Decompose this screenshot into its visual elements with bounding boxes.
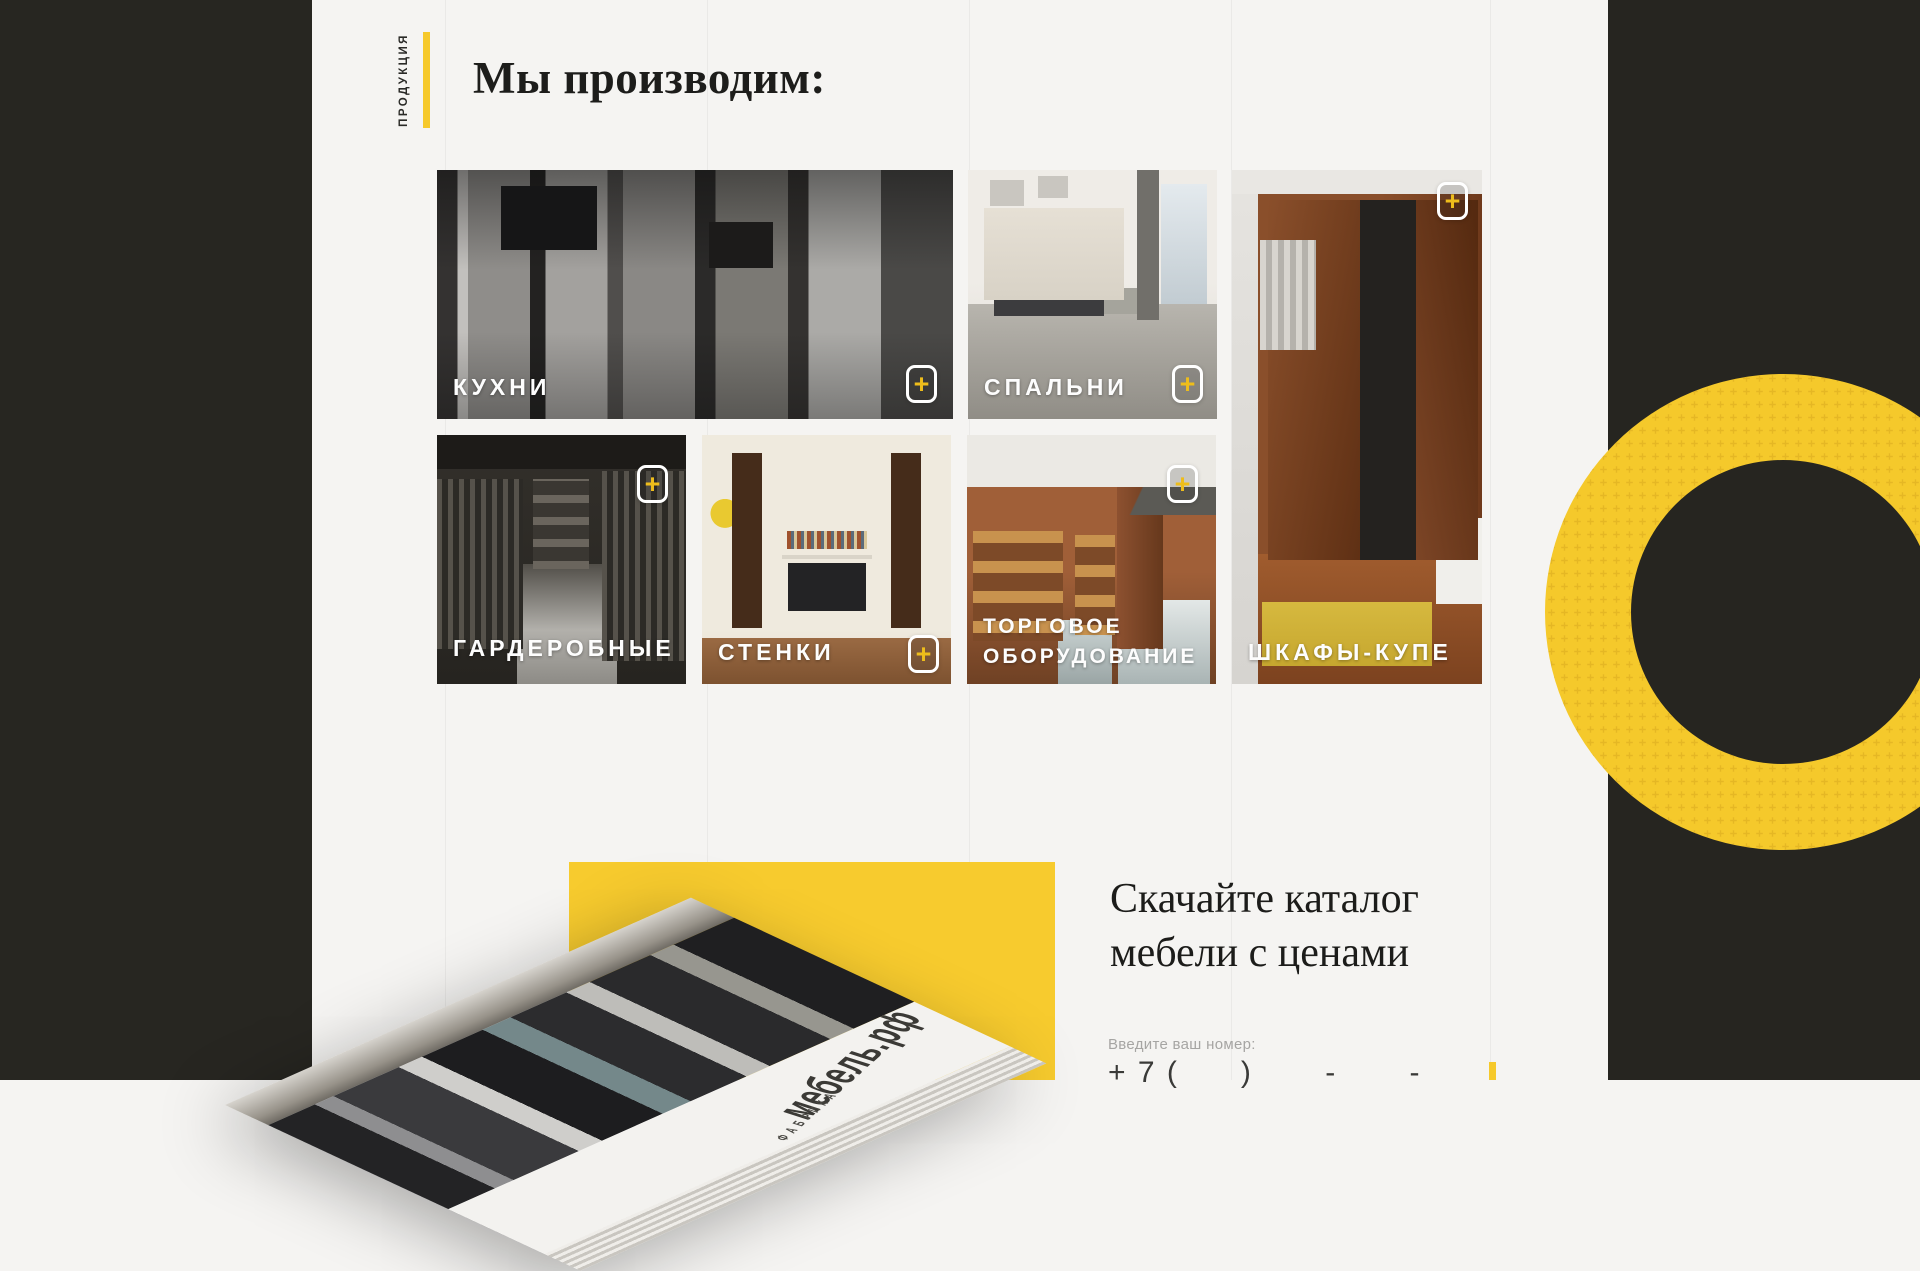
catalog-heading-line2: мебели с ценами [1110, 926, 1419, 980]
plus-button-sliding-wardrobes[interactable]: + [1437, 182, 1468, 220]
plus-button-wall-units[interactable]: + [908, 635, 939, 673]
card-label-kitchens: КУХНИ [453, 374, 550, 401]
page-title: Мы производим: [473, 52, 826, 104]
phone-input[interactable]: + 7 ( ) - - [1108, 1056, 1422, 1090]
card-label-bedrooms: СПАЛЬНИ [984, 374, 1128, 401]
donut-decoration [1545, 372, 1920, 852]
card-dressing-rooms[interactable]: ГАРДЕРОБНЫЕ + [437, 435, 686, 684]
card-wall-units[interactable]: СТЕНКИ + [702, 435, 951, 684]
catalog-heading-line1: Скачайте каталог [1110, 872, 1419, 926]
grid-line [1490, 0, 1491, 1080]
left-dark-band [0, 0, 312, 1080]
card-label-sliding-wardrobes: ШКАФЫ-КУПЕ [1248, 639, 1452, 666]
card-label-retail-equipment: ТОРГОВОЕ ОБОРУДОВАНИЕ [983, 612, 1183, 672]
plus-button-retail-equipment[interactable]: + [1167, 465, 1198, 503]
card-label-wall-units: СТЕНКИ [718, 639, 835, 666]
section-side-label: ПРОДУКЦИЯ [398, 33, 410, 127]
catalog-heading: Скачайте каталог мебели с ценами [1110, 872, 1419, 980]
card-sliding-wardrobes[interactable]: ШКАФЫ-КУПЕ + [1232, 170, 1482, 684]
card-retail-equipment[interactable]: ТОРГОВОЕ ОБОРУДОВАНИЕ + [967, 435, 1216, 684]
plus-button-bedrooms[interactable]: + [1172, 365, 1203, 403]
plus-button-dressing-rooms[interactable]: + [637, 465, 668, 503]
next-section-marker-line [1489, 1062, 1496, 1080]
card-kitchens[interactable]: КУХНИ + [437, 170, 953, 419]
card-label-dressing-rooms: ГАРДЕРОБНЫЕ [453, 635, 675, 662]
plus-button-kitchens[interactable]: + [906, 365, 937, 403]
card-bedrooms[interactable]: СПАЛЬНИ + [968, 170, 1217, 419]
section-marker-line [423, 32, 430, 128]
phone-input-label: Введите ваш номер: [1108, 1036, 1256, 1053]
